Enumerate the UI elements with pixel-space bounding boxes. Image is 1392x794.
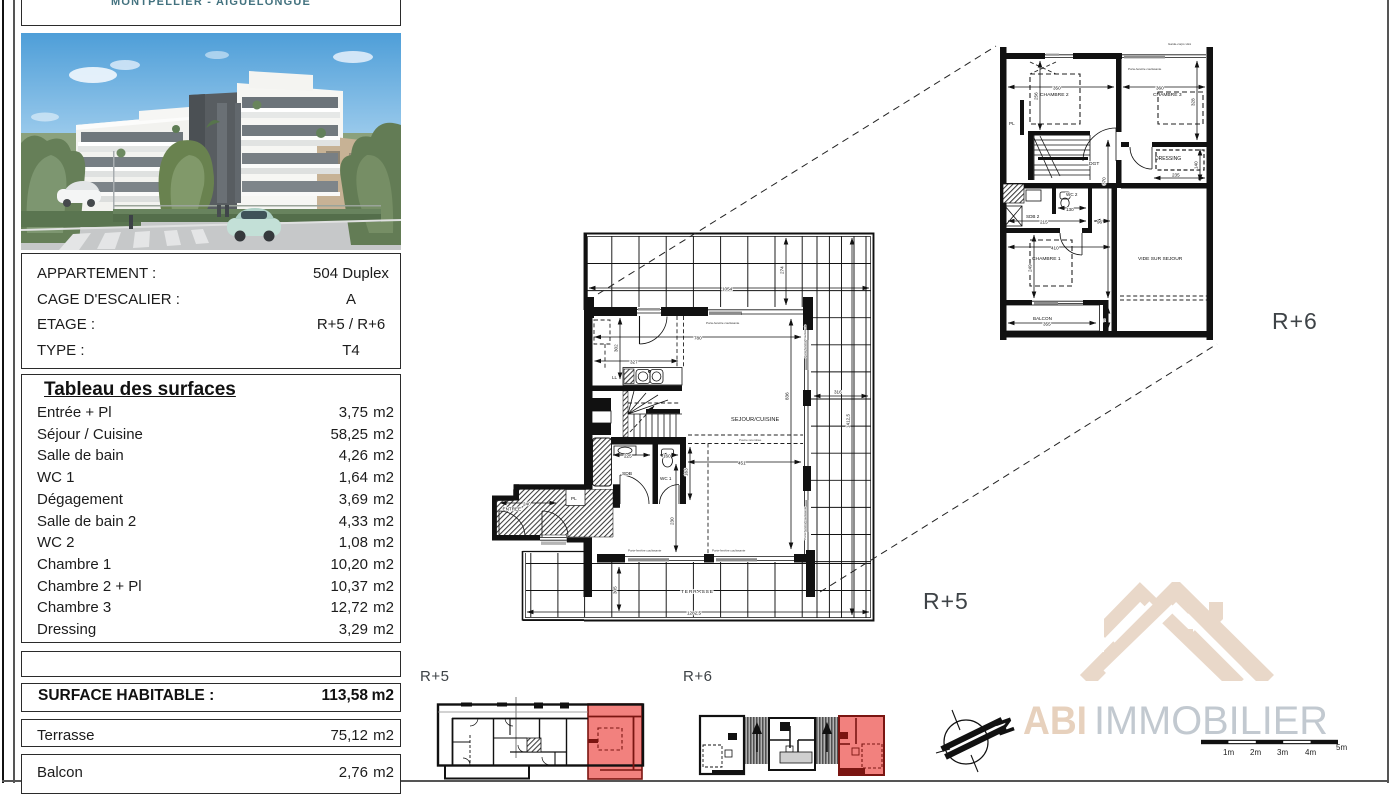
svg-text:302: 302 [614, 344, 619, 352]
svg-text:VIDE SUR SEJOUR: VIDE SUR SEJOUR [1138, 256, 1183, 262]
svg-text:328: 328 [1191, 98, 1196, 106]
svg-text:WC 2: WC 2 [1066, 192, 1078, 197]
svg-text:355: 355 [1043, 322, 1051, 327]
svg-text:LL: LL [612, 375, 618, 380]
svg-text:836: 836 [785, 392, 790, 400]
svg-text:1m: 1m [1223, 748, 1234, 757]
svg-text:ENTREE: ENTREE [503, 507, 522, 512]
svg-text:DGT: DGT [1089, 161, 1099, 167]
svg-text:360: 360 [1156, 86, 1164, 91]
svg-text:160: 160 [663, 454, 671, 459]
svg-text:Porte-fenêtre coulissante: Porte-fenêtre coulissante [803, 324, 807, 358]
svg-text:96: 96 [1097, 220, 1103, 225]
svg-text:316: 316 [834, 390, 842, 395]
svg-text:780: 780 [694, 336, 702, 341]
svg-text:3m: 3m [1277, 748, 1288, 757]
svg-text:130: 130 [1066, 207, 1074, 212]
svg-text:274: 274 [780, 266, 785, 274]
svg-text:1282,5: 1282,5 [687, 611, 701, 616]
svg-text:230: 230 [670, 517, 675, 525]
svg-text:CHAMBRE 2: CHAMBRE 2 [1040, 92, 1069, 98]
svg-text:370: 370 [1102, 177, 1107, 185]
svg-text:235: 235 [1172, 173, 1180, 178]
svg-text:R+5: R+5 [420, 668, 449, 685]
svg-text:R+6: R+6 [1272, 308, 1318, 334]
svg-text:Porte-fenêtre coulissante: Porte-fenêtre coulissante [1128, 67, 1162, 71]
svg-text:451: 451 [738, 461, 746, 466]
svg-text:4m: 4m [1305, 748, 1316, 757]
svg-text:Porte-fenêtre coulissante: Porte-fenêtre coulissante [628, 549, 662, 553]
svg-text:R+5: R+5 [923, 588, 969, 614]
svg-text:249: 249 [1028, 264, 1033, 272]
svg-text:SDB 2: SDB 2 [1026, 214, 1040, 219]
svg-text:PL: PL [571, 496, 577, 501]
svg-text:R+6: R+6 [683, 668, 712, 685]
svg-text:Porte-fenêtre coulissante: Porte-fenêtre coulissante [706, 321, 740, 325]
svg-text:2m: 2m [1250, 748, 1261, 757]
svg-text:SDB: SDB [622, 471, 632, 477]
svg-text:305: 305 [613, 586, 618, 594]
svg-text:Porte-fenêtre coulissante: Porte-fenêtre coulissante [803, 506, 807, 540]
svg-text:BALCON: BALCON [1033, 316, 1052, 321]
svg-text:Porte-fenêtre coulissante: Porte-fenêtre coulissante [712, 549, 746, 553]
svg-text:78: 78 [1103, 318, 1107, 322]
svg-text:5m: 5m [1336, 743, 1347, 752]
svg-text:350: 350 [1053, 86, 1061, 91]
svg-text:140: 140 [1194, 161, 1199, 169]
svg-text:TERRASSE: TERRASSE [681, 589, 714, 595]
svg-text:240: 240 [523, 502, 531, 507]
svg-text:215: 215 [1040, 220, 1048, 225]
svg-text:1412,5: 1412,5 [846, 414, 851, 428]
svg-text:1054: 1054 [722, 287, 733, 292]
svg-text:PL: PL [1009, 121, 1015, 126]
svg-text:DRESSING: DRESSING [1155, 156, 1181, 162]
svg-text:SEJOUR/CUISINE: SEJOUR/CUISINE [731, 417, 780, 423]
svg-text:IMMOBILIER: IMMOBILIER [1094, 699, 1328, 743]
svg-text:256: 256 [1034, 92, 1039, 100]
svg-text:WC 1: WC 1 [660, 476, 672, 481]
svg-text:410: 410 [1051, 246, 1059, 251]
svg-text:CHAMBRE 3: CHAMBRE 3 [1153, 92, 1182, 98]
svg-text:Garde-corps vitré: Garde-corps vitré [1168, 42, 1192, 46]
svg-text:327: 327 [630, 360, 638, 365]
svg-text:CHAMBRE 1: CHAMBRE 1 [1032, 256, 1061, 262]
svg-text:163: 163 [684, 468, 689, 476]
svg-text:Poutre retombée: Poutre retombée [739, 438, 762, 442]
svg-text:225: 225 [624, 454, 632, 459]
svg-text:ABI: ABI [1023, 699, 1087, 743]
